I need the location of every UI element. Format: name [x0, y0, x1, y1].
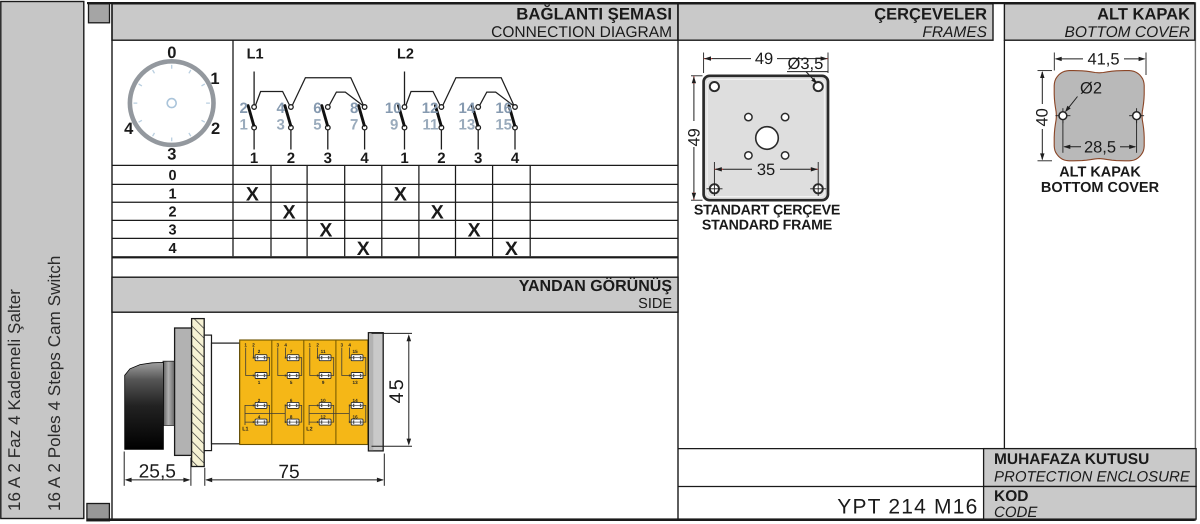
svg-text:X: X	[468, 220, 481, 242]
svg-text:16 A 2 Faz 4 Kademeli Şalter: 16 A 2 Faz 4 Kademeli Şalter	[5, 289, 24, 511]
svg-text:45: 45	[386, 377, 408, 403]
svg-text:1: 1	[240, 117, 248, 134]
svg-text:ALT KAPAK: ALT KAPAK	[1059, 165, 1141, 181]
svg-text:8: 8	[290, 415, 293, 420]
svg-text:1: 1	[400, 150, 408, 167]
svg-text:16 A 2 Poles 4 Steps Cam Switc: 16 A 2 Poles 4 Steps Cam Switch	[45, 256, 64, 511]
svg-text:CODE: CODE	[994, 504, 1038, 521]
svg-text:3: 3	[168, 223, 176, 239]
svg-text:6: 6	[290, 398, 293, 403]
svg-text:BOTTOM COVER: BOTTOM COVER	[1065, 24, 1190, 41]
svg-text:2: 2	[168, 205, 176, 221]
svg-text:5: 5	[290, 380, 293, 385]
svg-text:3: 3	[277, 343, 280, 348]
svg-text:4: 4	[284, 343, 287, 348]
svg-text:2: 2	[437, 150, 445, 167]
svg-text:11: 11	[423, 117, 439, 134]
svg-text:2: 2	[211, 120, 220, 138]
svg-text:13: 13	[353, 380, 359, 385]
svg-text:BOTTOM COVER: BOTTOM COVER	[1041, 180, 1160, 196]
svg-text:Ø2: Ø2	[1080, 80, 1102, 98]
svg-text:YANDAN GÖRÜNÜŞ: YANDAN GÖRÜNÜŞ	[519, 277, 673, 295]
svg-text:1: 1	[210, 70, 219, 88]
svg-text:CONNECTION DIAGRAM: CONNECTION DIAGRAM	[491, 24, 672, 41]
svg-text:3: 3	[341, 343, 344, 348]
svg-text:ALT KAPAK: ALT KAPAK	[1097, 6, 1190, 24]
svg-text:41,5: 41,5	[1087, 50, 1119, 68]
svg-text:2: 2	[252, 343, 255, 348]
svg-text:9: 9	[322, 380, 325, 385]
svg-text:4: 4	[360, 150, 369, 167]
svg-text:3: 3	[474, 150, 482, 167]
svg-text:11: 11	[321, 349, 326, 354]
svg-text:SIDE: SIDE	[638, 296, 672, 312]
svg-text:1: 1	[258, 380, 261, 385]
svg-text:4: 4	[258, 415, 261, 420]
svg-text:X: X	[394, 184, 407, 206]
svg-text:13: 13	[459, 117, 476, 134]
svg-text:X: X	[319, 220, 332, 242]
svg-text:2: 2	[258, 349, 261, 354]
svg-text:1: 1	[309, 343, 312, 348]
svg-text:49: 49	[755, 50, 773, 68]
svg-text:L2: L2	[306, 427, 312, 433]
svg-text:10: 10	[321, 398, 327, 403]
svg-text:16: 16	[353, 415, 359, 420]
svg-text:FRAMES: FRAMES	[922, 24, 987, 41]
svg-text:7: 7	[290, 349, 293, 354]
svg-text:4: 4	[348, 343, 351, 348]
svg-text:49: 49	[685, 128, 703, 146]
svg-text:35: 35	[757, 161, 775, 179]
svg-text:12: 12	[321, 415, 327, 420]
svg-text:9: 9	[390, 117, 398, 134]
svg-text:14: 14	[459, 100, 476, 117]
svg-text:6: 6	[313, 100, 321, 117]
svg-text:2: 2	[240, 100, 248, 117]
svg-text:7: 7	[350, 117, 358, 134]
svg-text:14: 14	[353, 398, 359, 403]
svg-text:2: 2	[258, 398, 261, 403]
svg-text:X: X	[283, 202, 296, 224]
svg-text:12: 12	[422, 100, 439, 117]
svg-text:3: 3	[276, 117, 284, 134]
svg-text:PROTECTION ENCLOSURE: PROTECTION ENCLOSURE	[994, 469, 1191, 486]
svg-text:4: 4	[276, 100, 285, 117]
svg-text:15: 15	[495, 117, 512, 134]
svg-text:2: 2	[287, 150, 295, 167]
svg-text:L2: L2	[397, 47, 414, 63]
svg-text:4: 4	[124, 120, 134, 138]
svg-text:28,5: 28,5	[1084, 138, 1116, 156]
svg-text:X: X	[505, 238, 518, 260]
svg-text:8: 8	[350, 100, 358, 117]
svg-text:X: X	[246, 184, 259, 206]
svg-text:X: X	[357, 238, 370, 260]
svg-text:15: 15	[353, 349, 359, 354]
svg-text:0: 0	[168, 168, 176, 184]
svg-text:Ø3,5: Ø3,5	[788, 55, 824, 73]
svg-text:3: 3	[167, 146, 176, 164]
svg-text:MUHAFAZA KUTUSU: MUHAFAZA KUTUSU	[994, 451, 1149, 468]
svg-text:L1: L1	[247, 47, 264, 63]
svg-text:16: 16	[495, 100, 512, 117]
svg-text:75: 75	[278, 462, 299, 483]
svg-text:10: 10	[385, 100, 402, 117]
svg-text:1: 1	[250, 150, 258, 167]
svg-text:1: 1	[168, 187, 176, 203]
svg-text:X: X	[431, 202, 444, 224]
svg-text:4: 4	[168, 241, 176, 257]
svg-text:KOD: KOD	[994, 488, 1028, 505]
svg-text:5: 5	[313, 117, 321, 134]
svg-text:ÇERÇEVELER: ÇERÇEVELER	[874, 6, 987, 24]
svg-text:25,5: 25,5	[139, 461, 176, 482]
svg-text:1: 1	[244, 343, 247, 348]
svg-text:0: 0	[167, 44, 176, 62]
svg-text:L1: L1	[242, 427, 248, 433]
svg-text:2: 2	[316, 343, 319, 348]
svg-text:STANDART ÇERÇEVE: STANDART ÇERÇEVE	[694, 203, 840, 219]
svg-text:STANDARD FRAME: STANDARD FRAME	[702, 218, 832, 234]
svg-text:40: 40	[1034, 108, 1052, 126]
svg-text:4: 4	[511, 150, 520, 167]
svg-text:3: 3	[324, 150, 332, 167]
svg-text:YPT 214 M16: YPT 214 M16	[837, 496, 978, 519]
svg-text:BAĞLANTI ŞEMASI: BAĞLANTI ŞEMASI	[516, 5, 672, 24]
